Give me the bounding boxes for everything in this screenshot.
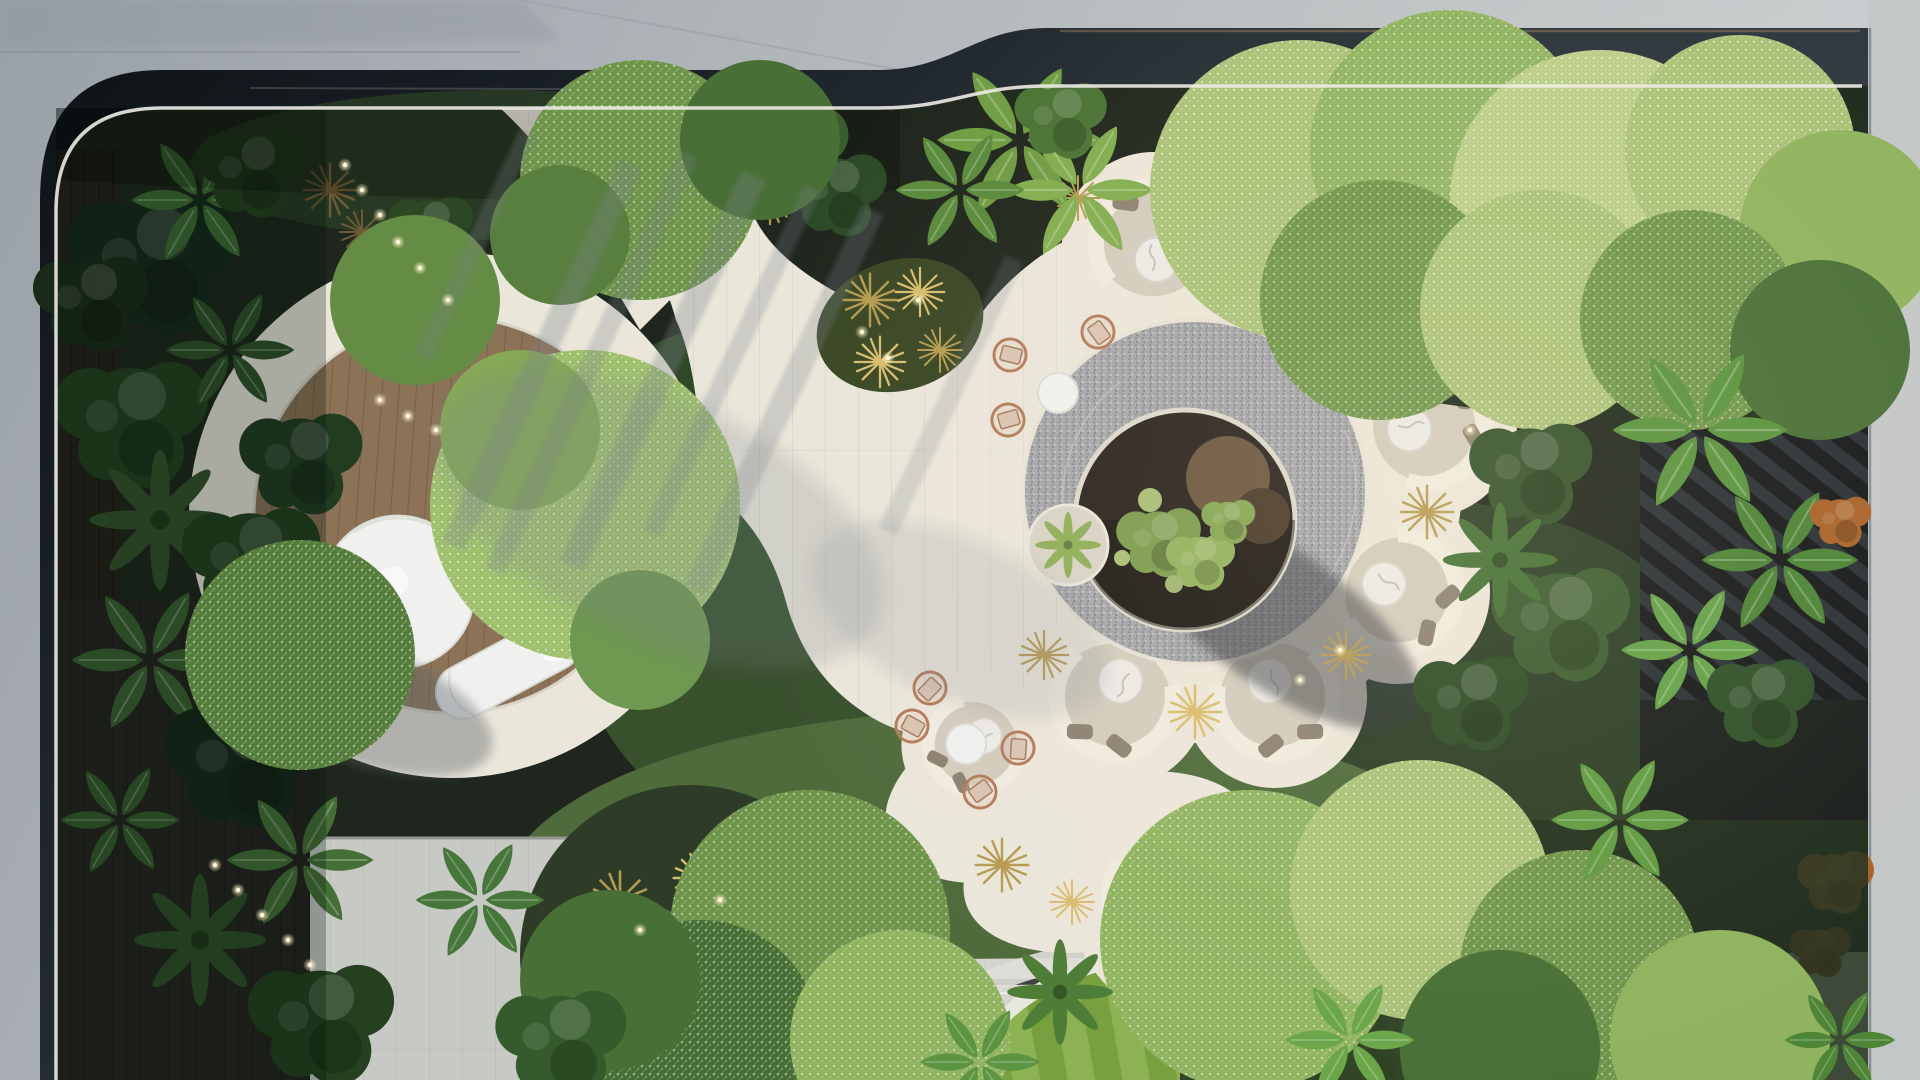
canopy-speckle — [185, 540, 415, 770]
aerial-render-canvas — [0, 0, 1920, 1080]
path-light — [441, 293, 455, 307]
path-light — [355, 183, 369, 197]
path-light — [338, 158, 352, 172]
rooftop-garden-aerial-view — [0, 0, 1920, 1080]
path-light — [303, 958, 317, 972]
path-light — [281, 933, 295, 947]
path-light — [373, 208, 387, 222]
path-light — [413, 261, 427, 275]
path-light — [373, 393, 387, 407]
path-light — [429, 423, 443, 437]
path-light — [208, 858, 222, 872]
path-light — [391, 235, 405, 249]
path-light — [231, 883, 245, 897]
path-light — [255, 908, 269, 922]
path-light — [713, 893, 727, 907]
pavement-shade — [0, 0, 560, 48]
path-light — [633, 923, 647, 937]
path-light — [401, 409, 415, 423]
